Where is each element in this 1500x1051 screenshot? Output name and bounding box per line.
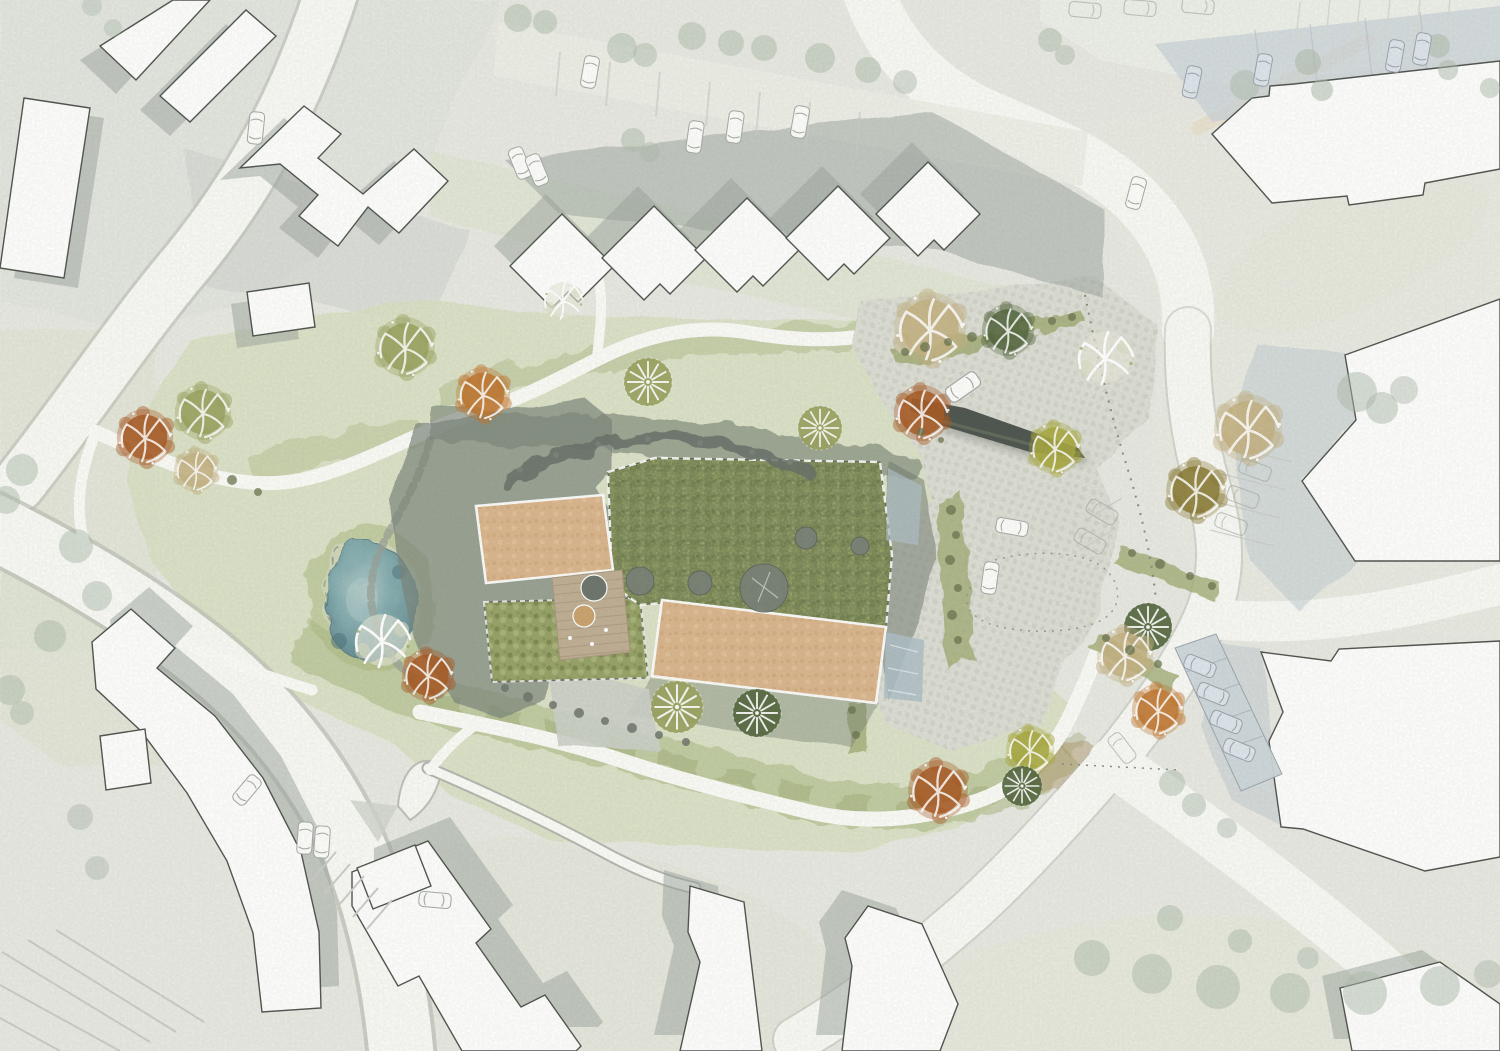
- site-plan-drawing: [0, 0, 1500, 1051]
- site-plan-canvas: [0, 0, 1500, 1051]
- paper-grain: [0, 0, 1500, 1051]
